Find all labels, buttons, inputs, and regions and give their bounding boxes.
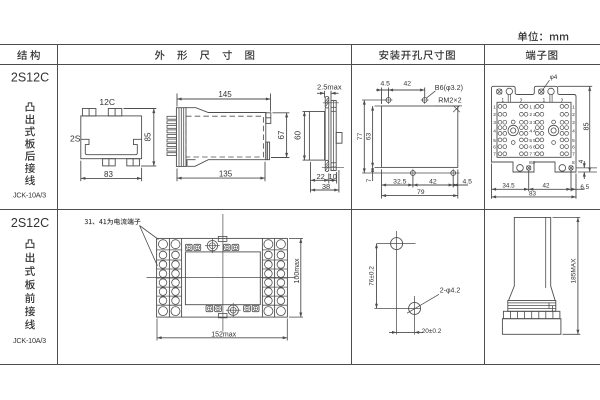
svg-text:12C: 12C	[99, 97, 115, 107]
svg-text:5: 5	[493, 138, 496, 144]
svg-text:2S12C: 2S12C	[11, 216, 49, 230]
svg-text:32.5: 32.5	[393, 178, 406, 185]
svg-text:B6(φ3.2): B6(φ3.2)	[435, 83, 463, 92]
svg-text:φ4: φ4	[550, 74, 558, 81]
svg-text:42: 42	[429, 178, 437, 185]
svg-text:1: 1	[501, 98, 504, 104]
svg-text:60: 60	[294, 130, 303, 139]
svg-text:6: 6	[529, 145, 532, 151]
svg-text:2: 2	[533, 112, 536, 118]
svg-text:RM2×2: RM2×2	[438, 96, 461, 105]
svg-text:7: 7	[493, 152, 496, 158]
svg-text:100max: 100max	[294, 258, 301, 283]
svg-text:77: 77	[357, 133, 364, 141]
svg-text:4: 4	[529, 128, 532, 134]
svg-text:145: 145	[218, 90, 232, 99]
svg-text:63: 63	[365, 133, 372, 141]
svg-text:152max: 152max	[211, 331, 236, 338]
svg-text:1: 1	[572, 104, 575, 110]
svg-text:38: 38	[322, 182, 330, 191]
svg-text:4: 4	[533, 128, 536, 134]
svg-text:6: 6	[493, 145, 496, 151]
svg-text:85: 85	[144, 132, 153, 141]
svg-text:79: 79	[417, 189, 425, 196]
svg-text:2: 2	[572, 112, 575, 118]
svg-text:6: 6	[533, 145, 536, 151]
svg-text:1: 1	[529, 104, 532, 110]
svg-text:5: 5	[529, 138, 532, 144]
svg-text:3: 3	[529, 120, 532, 126]
svg-text:135: 135	[219, 169, 233, 178]
svg-text:6.5: 6.5	[580, 184, 589, 191]
svg-text:JCK-10A/3: JCK-10A/3	[13, 336, 46, 345]
svg-text:1: 1	[493, 104, 496, 110]
svg-text:2S: 2S	[70, 133, 81, 143]
svg-text:7: 7	[533, 152, 536, 158]
svg-text:3: 3	[533, 120, 536, 126]
svg-text:4.5: 4.5	[462, 178, 472, 185]
svg-text:83: 83	[104, 170, 113, 179]
svg-text:34.5: 34.5	[502, 183, 515, 190]
svg-text:2: 2	[561, 98, 564, 104]
svg-text:4: 4	[578, 159, 585, 163]
svg-text:22: 22	[317, 172, 325, 181]
svg-text:2: 2	[493, 112, 496, 118]
svg-text:5: 5	[533, 138, 536, 144]
svg-text:42: 42	[404, 81, 412, 88]
svg-text:1: 1	[533, 104, 536, 110]
svg-text:2S12C: 2S12C	[11, 71, 49, 85]
svg-text:76±0.2: 76±0.2	[369, 266, 376, 286]
svg-text:4: 4	[572, 128, 575, 134]
svg-text:7: 7	[572, 152, 575, 158]
svg-text:7: 7	[529, 152, 532, 158]
svg-text:2: 2	[520, 98, 523, 104]
svg-text:7: 7	[366, 178, 373, 182]
svg-text:1: 1	[543, 98, 546, 104]
svg-text:2.5max: 2.5max	[317, 83, 342, 92]
svg-text:8: 8	[572, 160, 575, 166]
svg-text:5: 5	[572, 138, 575, 144]
svg-text:85: 85	[582, 123, 591, 131]
svg-text:JCK-10A/3: JCK-10A/3	[13, 191, 46, 200]
svg-text:10: 10	[329, 172, 337, 181]
svg-text:2-φ4.2: 2-φ4.2	[440, 288, 461, 295]
svg-text:6: 6	[572, 145, 575, 151]
svg-text:67: 67	[277, 130, 286, 139]
svg-text:4: 4	[493, 128, 496, 134]
svg-text:20±0.2: 20±0.2	[422, 328, 442, 335]
svg-text:2: 2	[529, 112, 532, 118]
svg-text:3: 3	[493, 120, 496, 126]
svg-text:185MAX: 185MAX	[571, 258, 578, 284]
svg-text:8: 8	[532, 160, 535, 166]
svg-text:42: 42	[542, 183, 550, 190]
svg-text:4.5: 4.5	[380, 81, 390, 88]
svg-text:83: 83	[529, 191, 537, 198]
svg-text:3: 3	[572, 120, 575, 126]
